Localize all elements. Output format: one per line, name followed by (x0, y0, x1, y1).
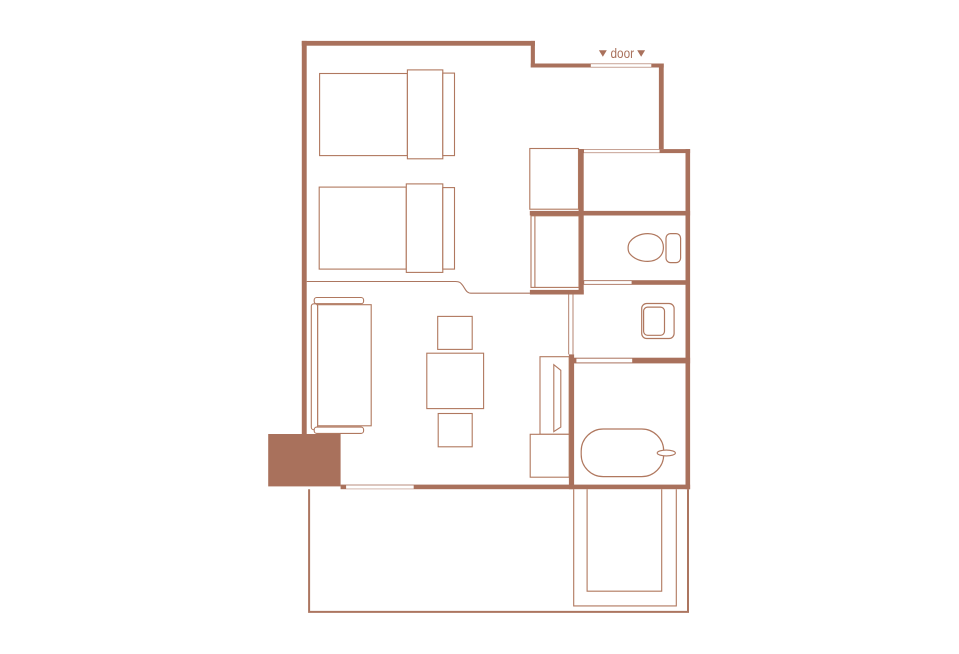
svg-text:door: door (611, 46, 635, 61)
